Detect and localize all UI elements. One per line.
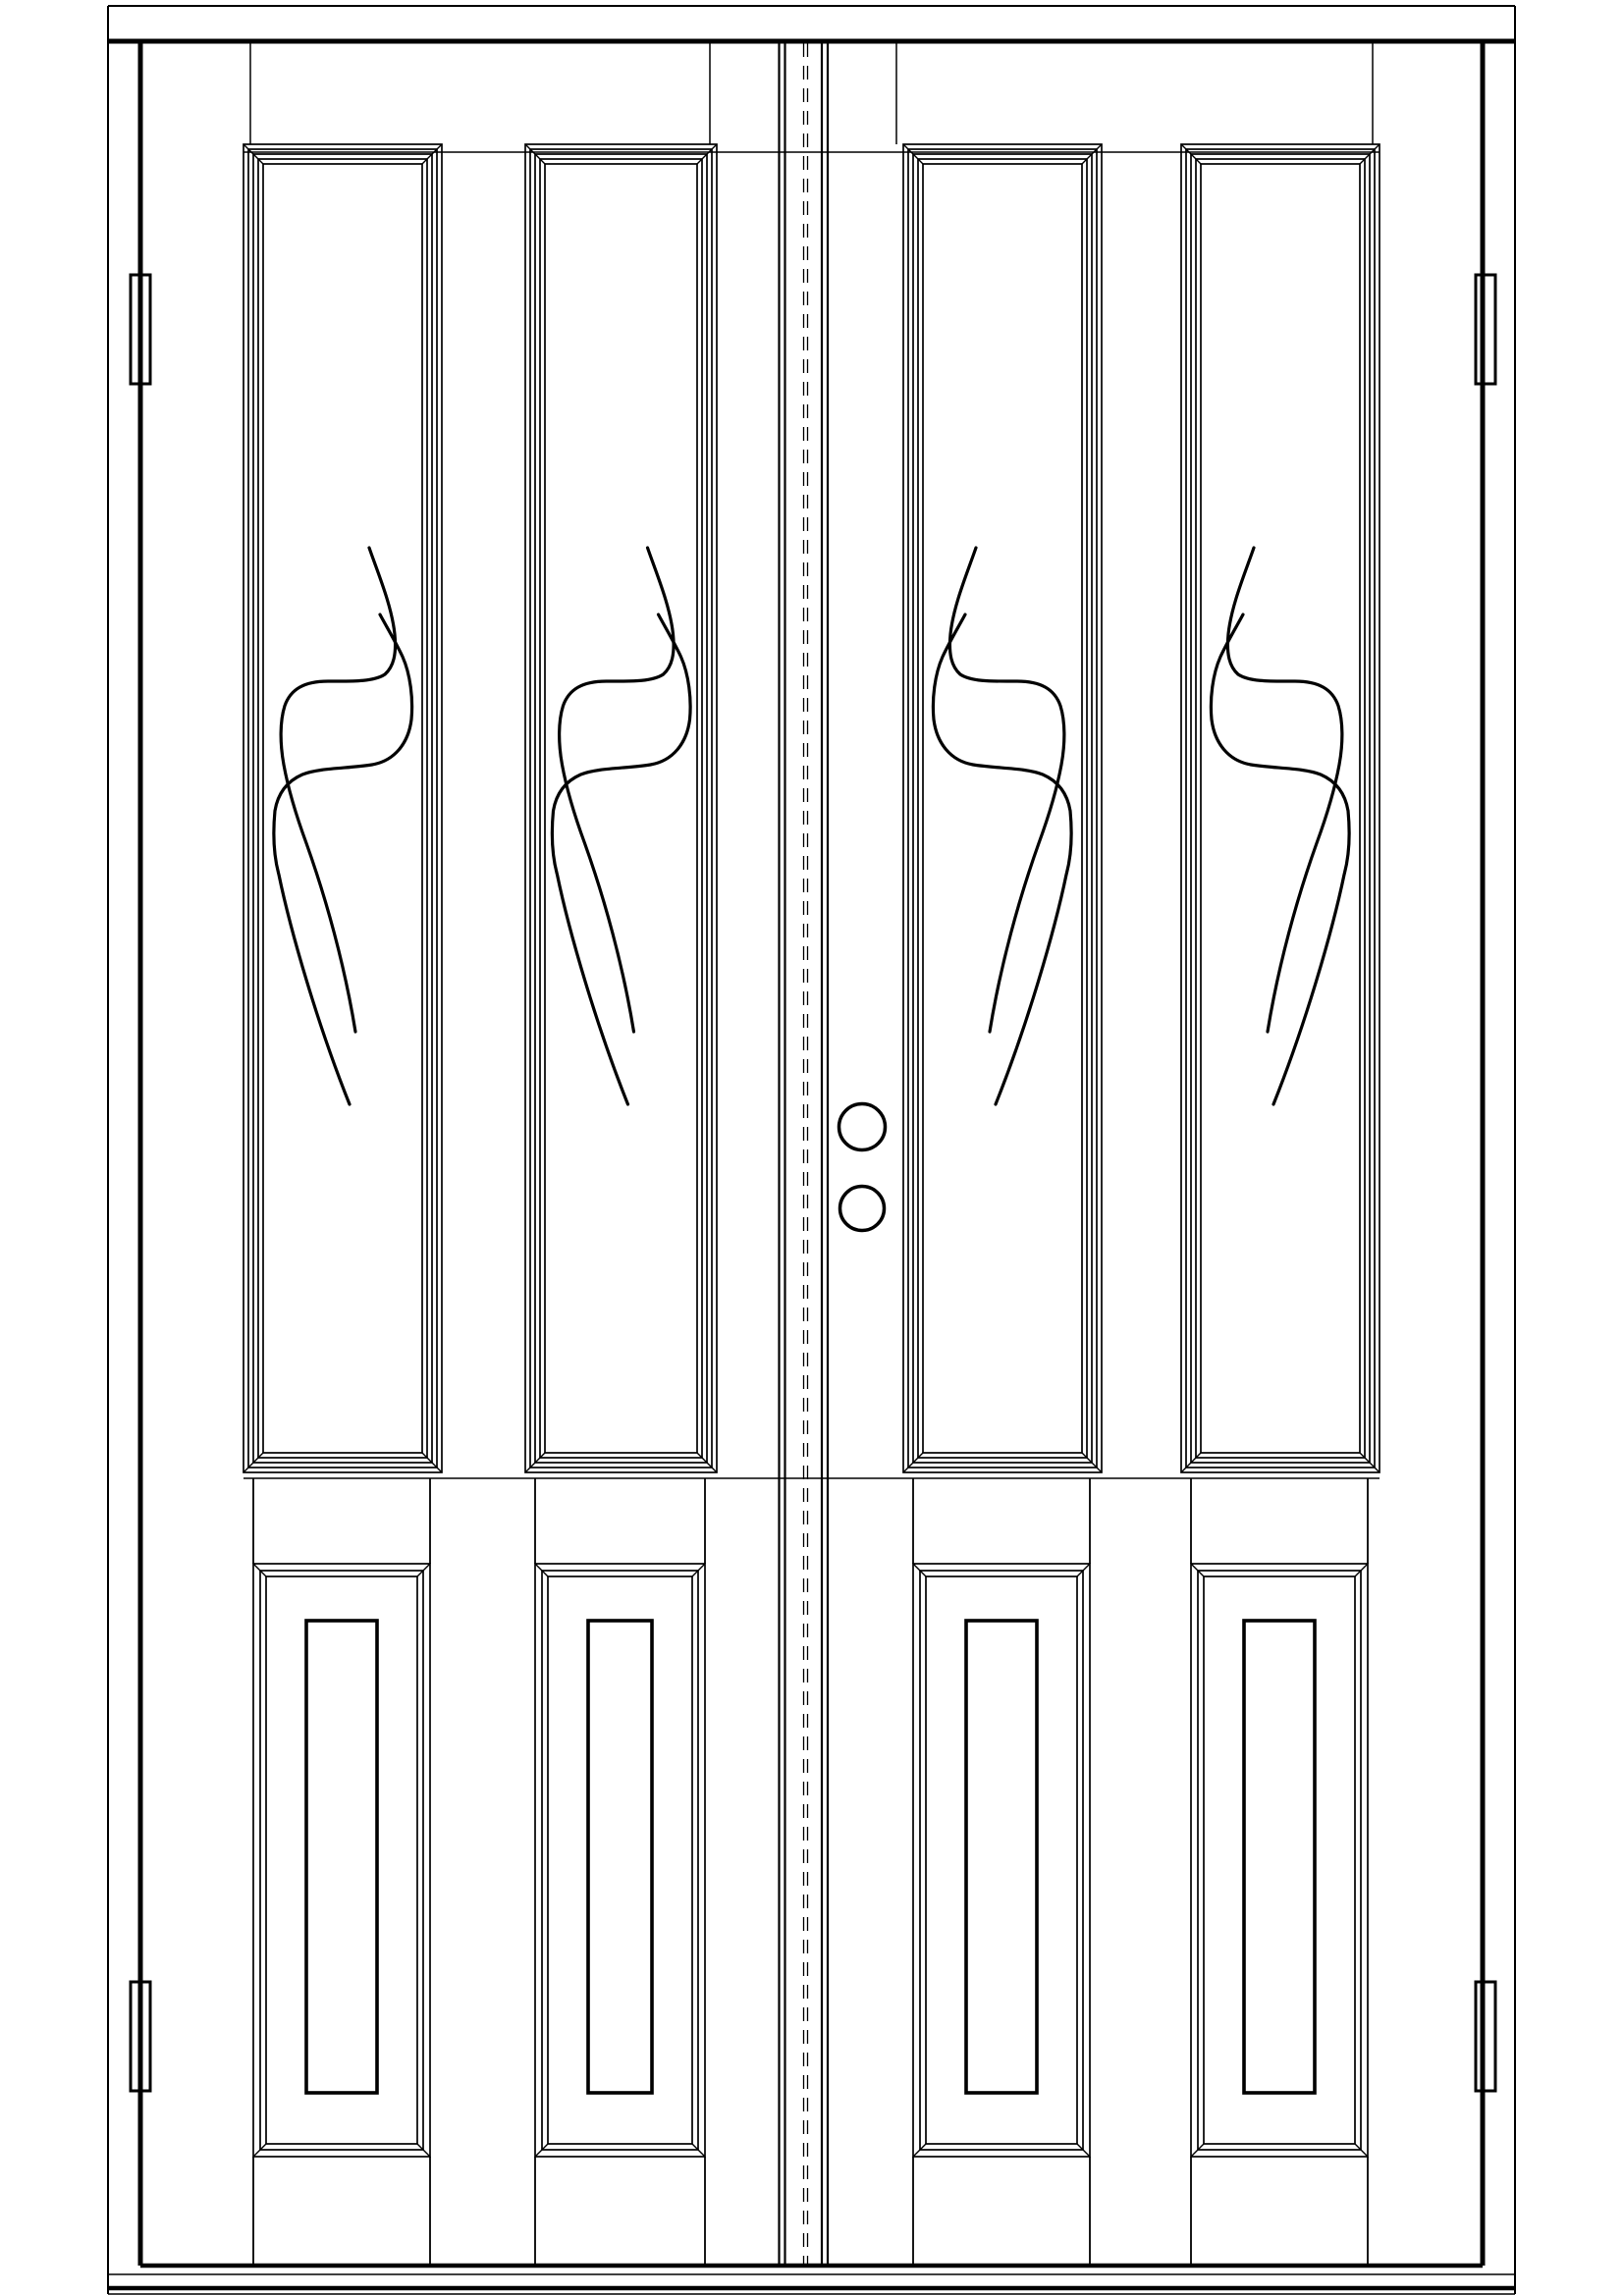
door-elevation-drawing [0, 0, 1623, 2296]
cad-canvas [0, 0, 1623, 2296]
